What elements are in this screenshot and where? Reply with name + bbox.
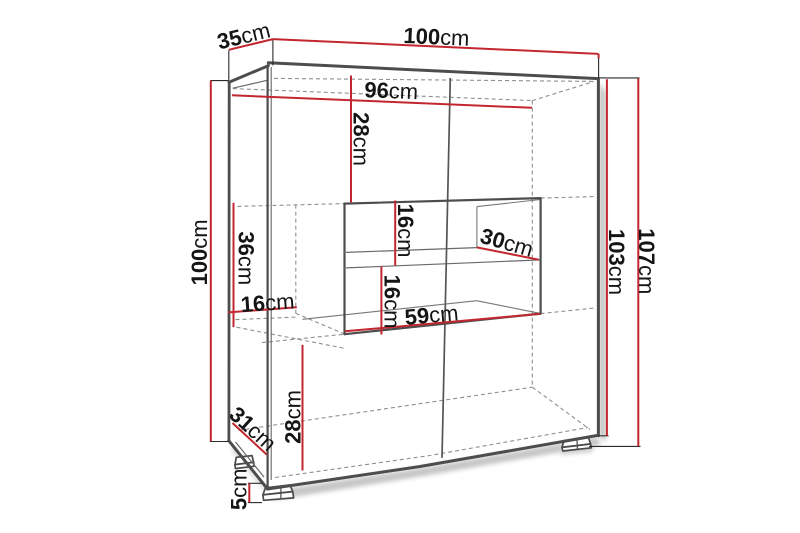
svg-text:16cm: 16cm bbox=[393, 204, 418, 258]
svg-text:59cm: 59cm bbox=[404, 300, 460, 330]
svg-text:96cm: 96cm bbox=[364, 77, 419, 104]
svg-text:100cm: 100cm bbox=[187, 219, 212, 285]
svg-text:30cm: 30cm bbox=[478, 223, 537, 262]
svg-text:107cm: 107cm bbox=[634, 228, 659, 294]
svg-text:35cm: 35cm bbox=[215, 17, 273, 54]
svg-text:36cm: 36cm bbox=[233, 231, 258, 285]
svg-text:28cm: 28cm bbox=[281, 390, 306, 444]
svg-text:100cm: 100cm bbox=[403, 23, 470, 51]
svg-text:28cm: 28cm bbox=[348, 112, 373, 166]
svg-text:16cm: 16cm bbox=[379, 275, 404, 329]
svg-text:5cm: 5cm bbox=[226, 469, 251, 511]
svg-text:16cm: 16cm bbox=[240, 288, 295, 317]
svg-text:103cm: 103cm bbox=[604, 229, 629, 295]
